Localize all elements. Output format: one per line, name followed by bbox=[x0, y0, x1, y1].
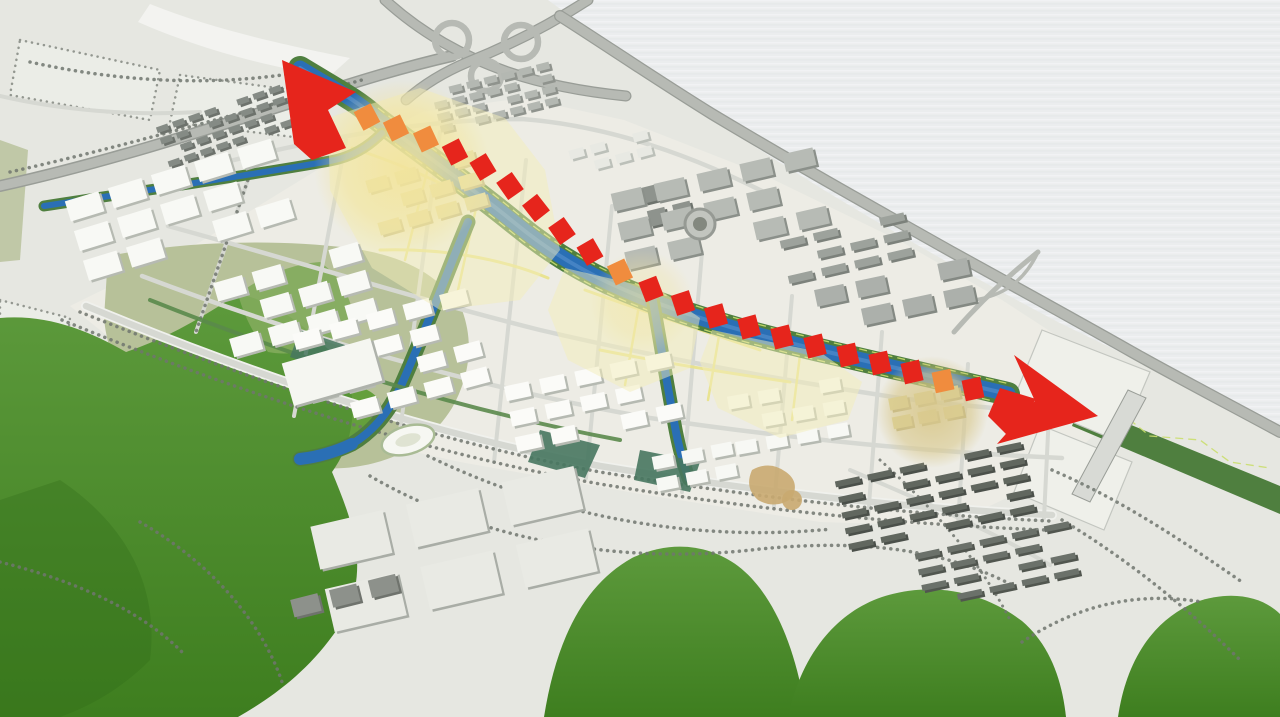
masterplan-rendering bbox=[0, 0, 1280, 717]
tan-plaza-blob-2 bbox=[782, 490, 802, 510]
glow-west bbox=[314, 80, 490, 256]
masterplan-canvas bbox=[0, 0, 1280, 717]
round-plaza-building bbox=[693, 217, 707, 231]
